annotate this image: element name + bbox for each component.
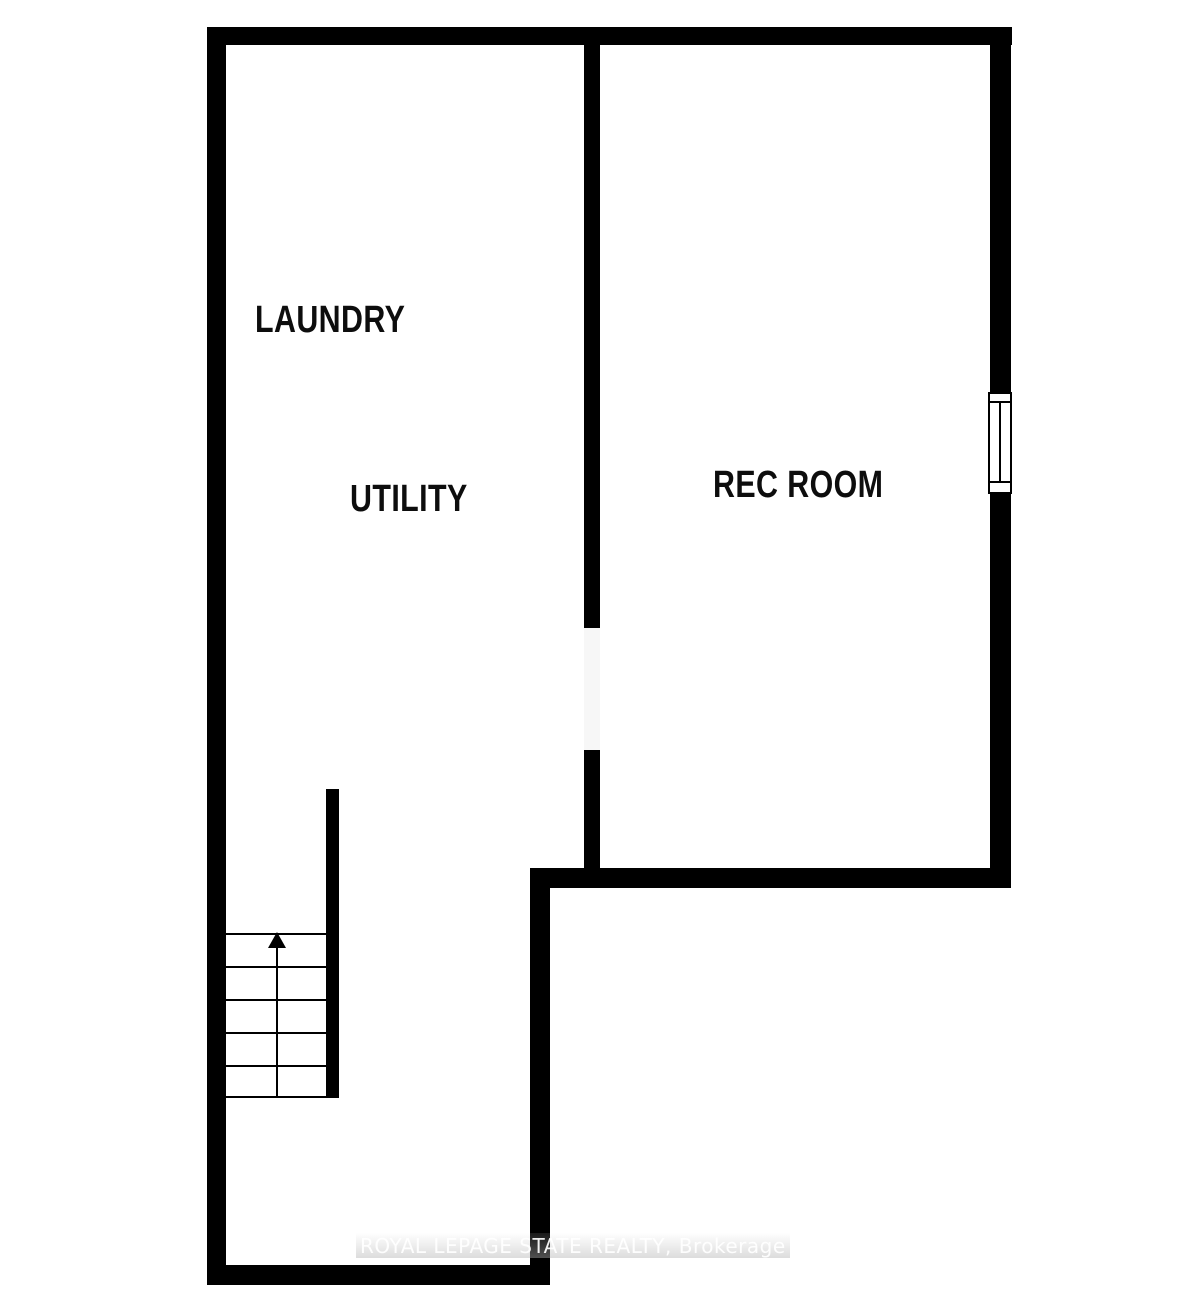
corridor-right-wall [530, 888, 550, 1285]
window-icon [988, 392, 1012, 494]
room-label-rec-room: REC ROOM [713, 466, 883, 504]
room-label-utility: UTILITY [350, 480, 468, 518]
window-glass-line [999, 401, 1001, 483]
outer-wall-bottom [207, 1265, 550, 1285]
interior-wall-lower [584, 750, 600, 868]
brokerage-watermark-text: ROYAL LEPAGE STATE REALTY, Brokerage [360, 1234, 786, 1258]
room-label-laundry: LAUNDRY [255, 301, 405, 339]
up-arrow-icon [268, 932, 286, 948]
stair-side-wall [326, 789, 339, 1098]
stair-direction-arrow-shaft [276, 948, 278, 1097]
floor-plan: LAUNDRY UTILITY REC ROOM ROYAL LEPAGE ST… [0, 0, 1200, 1308]
rec-room-bottom-wall [530, 868, 1011, 888]
brokerage-watermark: ROYAL LEPAGE STATE REALTY, Brokerage [356, 1233, 790, 1258]
door-opening [584, 628, 600, 750]
outer-wall-top [207, 27, 1012, 45]
outer-wall-right-lower [990, 494, 1011, 888]
outer-wall-left [207, 27, 226, 1285]
interior-wall-upper [584, 45, 600, 628]
outer-wall-right-upper [990, 27, 1011, 393]
